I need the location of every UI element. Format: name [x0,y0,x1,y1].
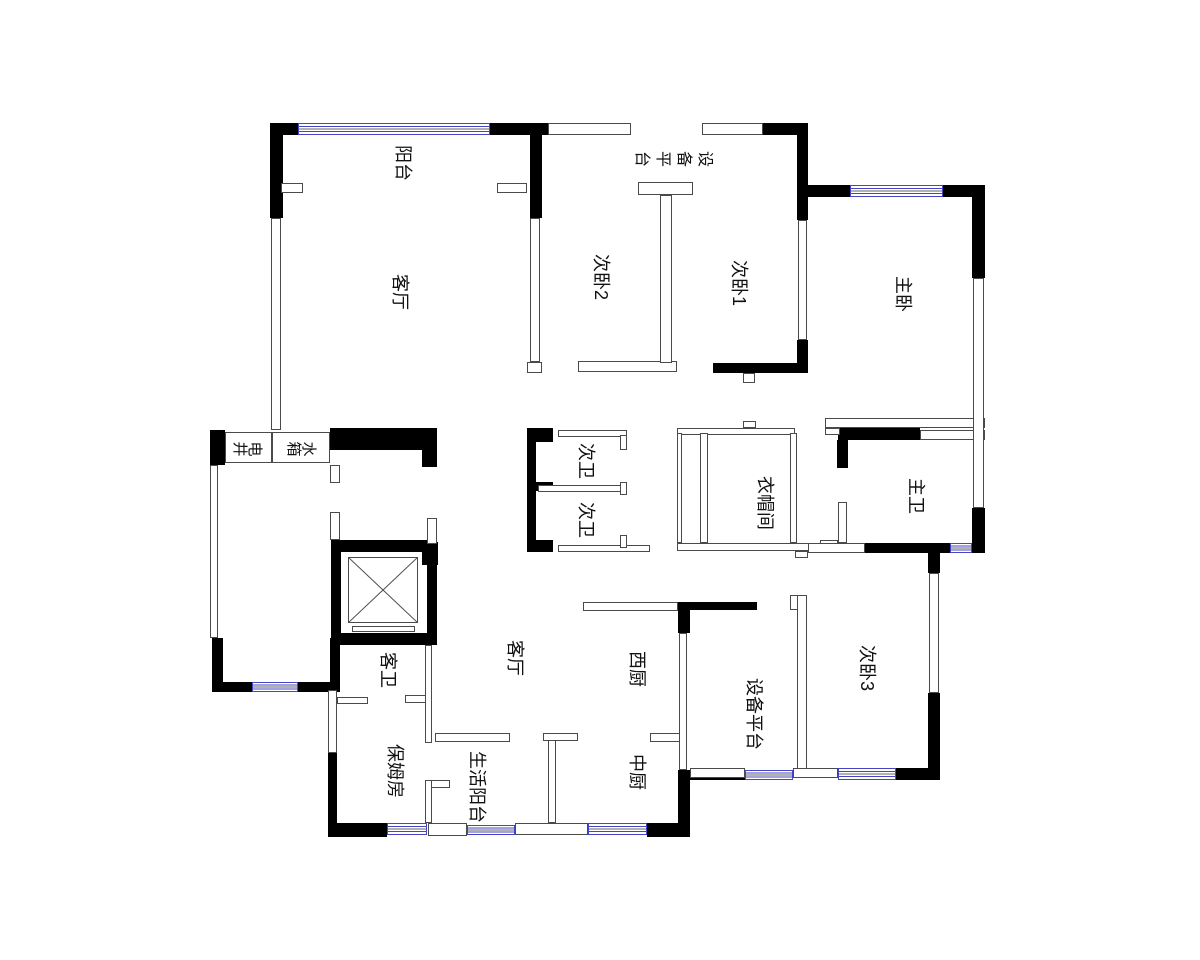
wall-segment [928,693,940,780]
thin-wall [825,418,985,428]
wall-segment [270,135,283,218]
elevator-shaft-icon [348,557,418,623]
thin-wall [638,182,693,195]
window-nanny-room [387,823,427,835]
thin-wall [973,278,984,508]
thin-wall [558,545,650,552]
wall-segment [330,638,340,692]
thin-wall [527,362,542,373]
room-label-nanny-room: 保姆房 [386,744,404,798]
thin-wall [702,123,763,135]
thin-wall [838,502,847,543]
thin-wall [583,602,678,611]
thin-wall [929,573,939,693]
wall-segment [427,552,437,633]
elevator-door [352,626,415,632]
door-frame [620,482,627,495]
thin-wall [548,740,556,823]
door-frame [330,465,340,483]
room-label-bathroom-2-outer: 次卫 [577,443,595,479]
room-label-water-tank: 水箱 [287,441,317,456]
window-master-bath [950,543,972,553]
room-label-walk-in-closet: 衣帽间 [756,476,774,530]
room-label-bedroom-3: 次卧3 [858,645,876,691]
wall-segment [647,823,688,837]
wall-segment [328,823,387,837]
window-balcony [298,123,490,135]
thin-wall [425,645,432,743]
thin-wall [793,768,838,778]
wall-segment [330,428,437,450]
room-label-bedroom-1: 次卧1 [730,260,748,306]
room-label-equipment-platform-top: 设备平台 [630,148,714,164]
wall-segment [863,543,950,553]
wall-segment [896,768,940,780]
room-label-western-kitchen: 西厨 [628,651,646,687]
window-equipment-platform [745,770,793,780]
room-label-guest-bathroom: 客卫 [379,652,397,688]
wall-segment [943,185,985,197]
thin-wall [650,733,682,742]
thin-wall [271,218,281,430]
room-label-service-balcony: 生活阳台 [468,751,486,823]
room-label-living-room: 客厅 [391,274,409,310]
room-label-living-room-center: 客厅 [506,640,524,676]
thin-wall [558,430,627,437]
room-label-bathroom-2-inner: 次卫 [577,502,595,538]
thin-wall [538,485,622,492]
window-chinese-kitchen [588,823,647,835]
thin-wall [679,633,687,770]
door-frame [743,373,755,383]
wall-segment [527,540,553,552]
wall-segment [837,440,848,468]
wall-segment [972,197,985,278]
door-frame [620,435,627,450]
thin-wall [530,218,540,362]
door-frame [825,428,840,435]
wall-segment [678,610,690,633]
wall-segment [331,633,437,645]
room-label-bedroom-2: 次卧2 [592,254,610,300]
wall-segment [422,450,437,467]
thin-wall [660,195,672,363]
window-master-bedroom [850,185,943,197]
door-frame [790,595,798,610]
thin-wall [700,433,708,543]
room-label-electric-shaft: 电井 [233,441,263,456]
wall-segment [808,185,850,197]
thin-wall [548,123,631,135]
window-bedroom-3 [838,768,896,780]
entry-opening [808,543,865,553]
wall-segment [763,123,808,135]
wall-segment [490,123,548,135]
door-frame [795,551,808,558]
wall-segment [797,135,808,220]
thin-wall [435,733,510,742]
thin-wall [428,823,467,836]
thin-wall [515,823,588,835]
door-frame [743,421,756,428]
window-lobby [252,682,298,692]
thin-wall [677,428,795,435]
thin-wall [797,595,807,770]
wall-segment [331,552,341,633]
door-frame [427,518,437,544]
wall-segment [928,553,940,573]
window-service-balcony [467,825,515,835]
wall-segment [270,123,298,135]
room-label-equipment-platform-bottom: 设备平台 [745,678,763,750]
wall-segment [713,363,808,373]
thin-wall [328,690,337,753]
wall-segment [530,135,542,218]
wall-segment [838,428,920,440]
room-label-master-bathroom: 主卫 [907,478,925,514]
thin-wall [677,433,682,543]
door-frame [281,183,303,193]
floor-plan: 阳台 客厅 次卧2 设备平台 次卧1 主卧 电井 水箱 次卫 次卫 衣帽间 主卫… [0,0,1200,960]
thin-wall [790,433,797,543]
thin-wall [798,220,807,340]
thin-wall [337,697,368,704]
room-label-balcony: 阳台 [394,145,412,181]
wall-segment [678,602,757,610]
door-frame [431,780,450,788]
thin-wall [210,465,218,638]
wall-segment [210,430,225,465]
wall-segment [972,543,985,553]
door-frame [330,512,340,540]
wall-segment [212,682,252,692]
room-label-master-bedroom: 主卧 [894,276,912,312]
room-label-chinese-kitchen: 中厨 [628,754,646,790]
door-frame [620,535,627,548]
door-frame [497,183,527,193]
thin-wall [690,768,745,778]
